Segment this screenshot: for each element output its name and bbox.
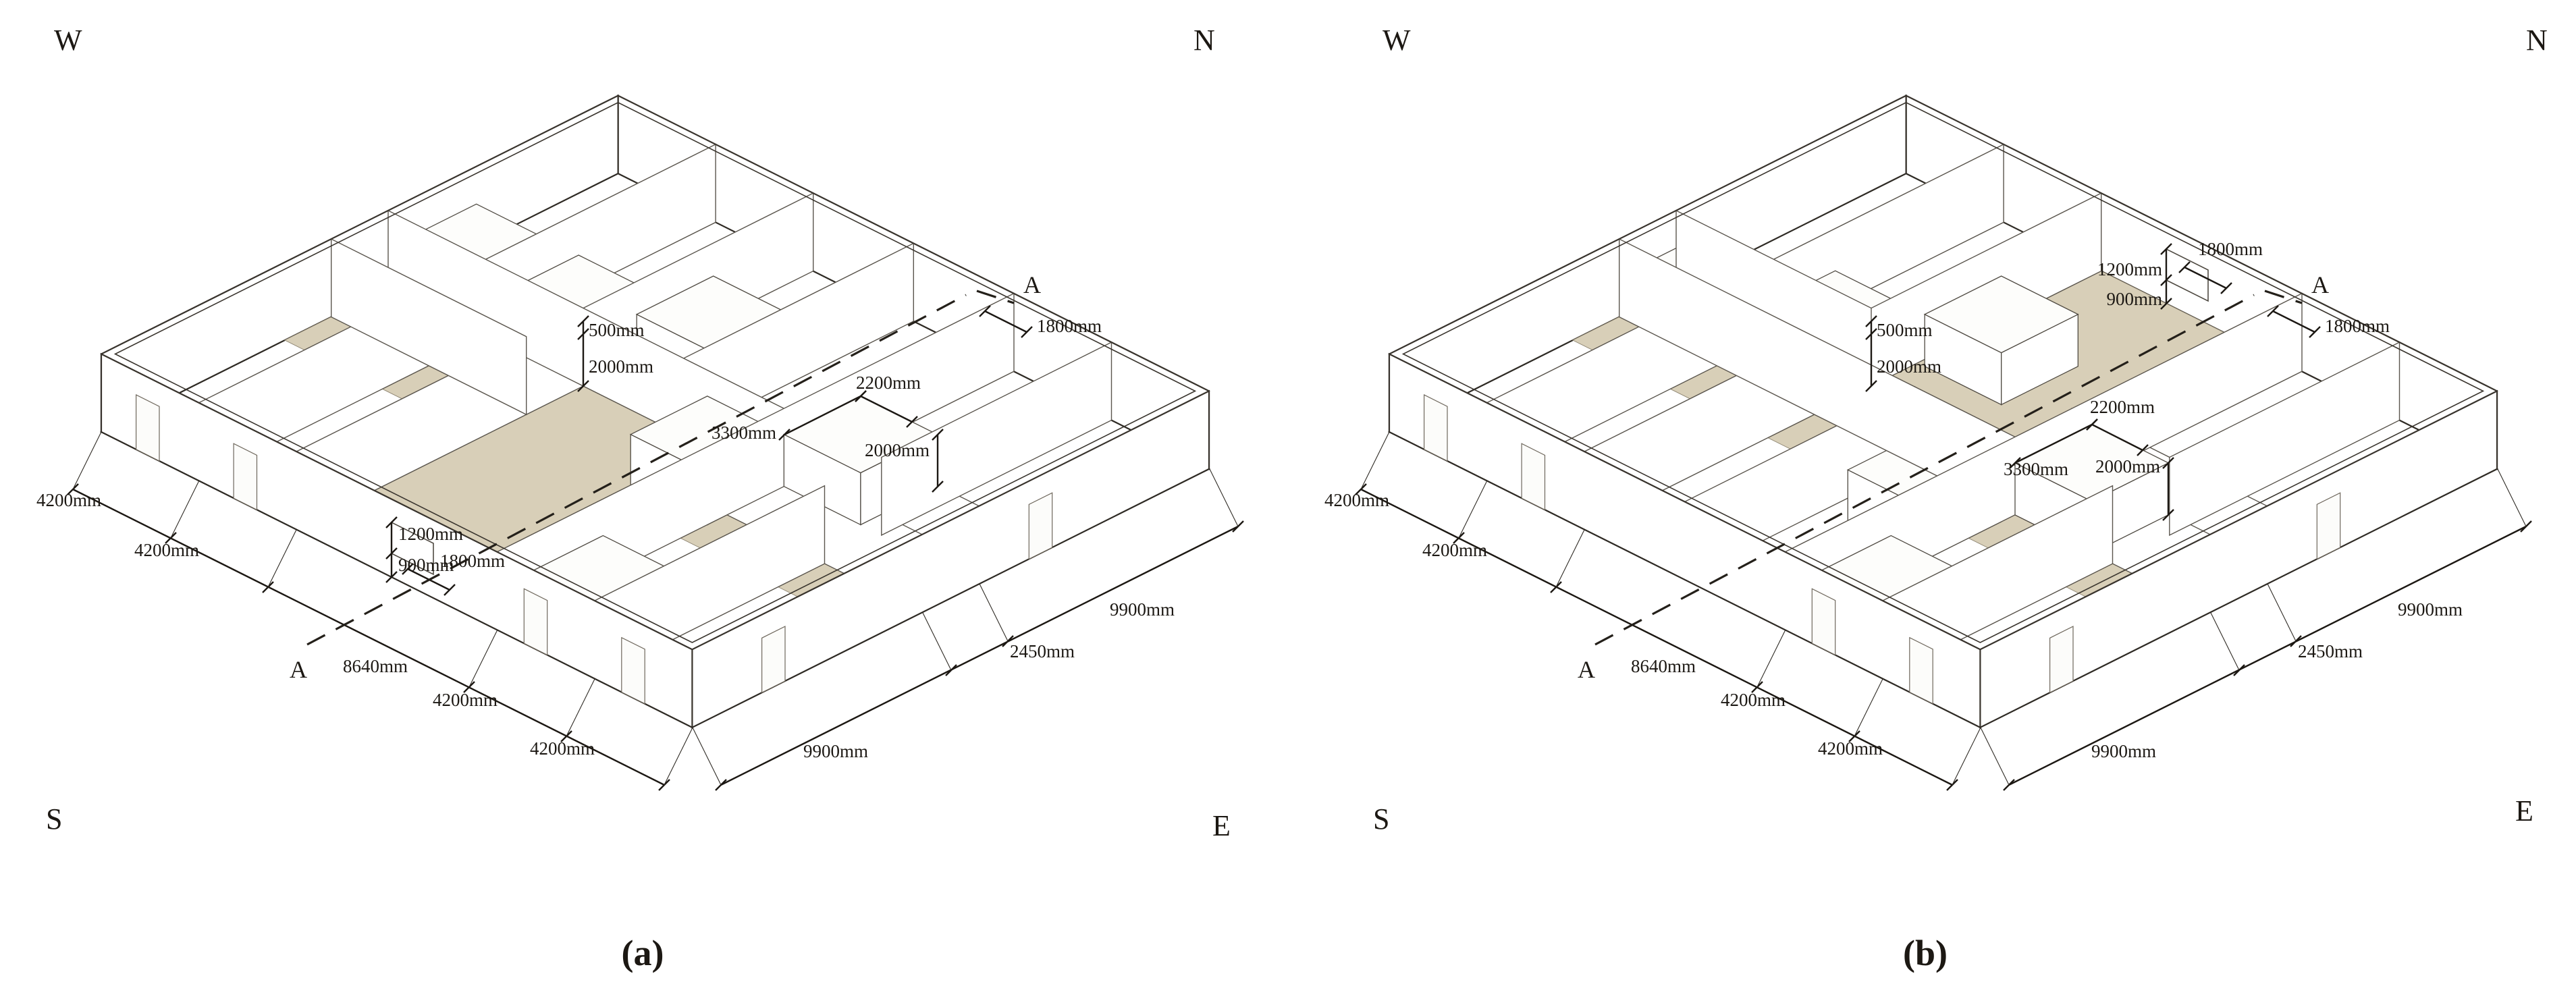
- compass-label: E: [2515, 794, 2533, 827]
- dimension-label: 500mm: [589, 320, 645, 340]
- witness-line: [171, 481, 199, 538]
- compass-label: E: [1212, 809, 1231, 842]
- dimension-label: 9900mm: [803, 741, 868, 761]
- witness-line: [73, 432, 101, 489]
- witness-line: [1952, 728, 1981, 785]
- witness-line: [2211, 613, 2239, 670]
- dimension-label: 1800mm: [2325, 316, 2390, 336]
- door-opening: [1812, 589, 1835, 655]
- dimension-label: 4200mm: [1818, 738, 1883, 759]
- panel-a: 500mm2000mm1800mm2000mm2200mm3300mm1800m…: [0, 0, 1288, 982]
- section-label: A: [290, 656, 307, 683]
- door-opening: [2317, 493, 2340, 559]
- dimension-label: 1200mm: [398, 524, 463, 544]
- door-opening: [1029, 493, 1052, 559]
- panel-a-drawing: 500mm2000mm1800mm2000mm2200mm3300mm1800m…: [0, 0, 1288, 982]
- compass-label: W: [54, 24, 82, 57]
- figure-axonometric-pair: 500mm2000mm1800mm2000mm2200mm3300mm1800m…: [0, 0, 2576, 982]
- witness-line: [664, 728, 693, 785]
- door-opening: [136, 395, 159, 461]
- dimension-label: 2000mm: [2095, 456, 2160, 476]
- compass-label: N: [1193, 24, 1215, 57]
- dimension-label: 2450mm: [2298, 641, 2363, 661]
- section-label: A: [1023, 271, 1041, 298]
- dimension-label: 4200mm: [530, 738, 595, 759]
- dimension-label: 2000mm: [865, 440, 930, 460]
- witness-line: [2498, 469, 2526, 526]
- witness-line: [693, 728, 721, 785]
- witness-line: [469, 630, 498, 687]
- dimension-label: 4200mm: [1422, 540, 1487, 560]
- witness-line: [1981, 728, 2009, 785]
- dimension-label: 4200mm: [134, 540, 199, 560]
- dimension-label: 1200mm: [2097, 259, 2162, 279]
- witness-line: [1757, 630, 1786, 687]
- dimension-label: 4200mm: [1324, 490, 1389, 510]
- compass-label: W: [1383, 24, 1411, 57]
- dimension-label: 8640mm: [1631, 656, 1696, 676]
- witness-line: [1210, 469, 1238, 526]
- dimension-label: 3300mm: [712, 422, 776, 443]
- dimension-label: 4200mm: [433, 690, 498, 710]
- door-opening: [622, 638, 645, 704]
- dimension-label: 9900mm: [2398, 599, 2463, 620]
- witness-line: [1459, 481, 1487, 538]
- dimension-label: 1800mm: [2198, 239, 2263, 259]
- dimension-label: 2200mm: [2090, 397, 2155, 417]
- witness-line: [980, 584, 1008, 641]
- door-opening: [1522, 443, 1545, 510]
- panel-caption: (b): [1903, 933, 1948, 973]
- door-opening: [234, 443, 257, 510]
- witness-line: [1556, 530, 1584, 587]
- witness-line: [268, 530, 296, 587]
- dimension-label: 500mm: [1877, 320, 1933, 340]
- dimension-label: 1800mm: [1037, 316, 1102, 336]
- dimension-label: 9900mm: [1110, 599, 1175, 620]
- compass-label: S: [46, 802, 62, 836]
- panel-b: 500mm2000mm1800mm1200mm900mm1800mm2000mm…: [1288, 0, 2576, 982]
- door-opening: [524, 589, 547, 655]
- dimension-label: 2450mm: [1010, 641, 1075, 661]
- dimension-label: 2000mm: [1877, 356, 1941, 377]
- dimension-label: 4200mm: [36, 490, 101, 510]
- dimension-label: 9900mm: [2091, 741, 2156, 761]
- compass-label: N: [2526, 24, 2548, 57]
- door-opening: [762, 626, 785, 692]
- door-opening: [1424, 395, 1447, 461]
- door-opening: [2050, 626, 2073, 692]
- dimension-label: 4200mm: [1721, 690, 1786, 710]
- section-label: A: [1578, 656, 1595, 683]
- witness-line: [566, 679, 595, 736]
- compass-label: S: [1373, 802, 1389, 836]
- panel-caption: (a): [622, 933, 664, 973]
- witness-line: [923, 613, 951, 670]
- dimension-label: 900mm: [2106, 289, 2162, 309]
- dimension-label: 3300mm: [2004, 459, 2068, 479]
- section-label: A: [2311, 271, 2329, 298]
- witness-line: [1361, 432, 1389, 489]
- dimension-label: 900mm: [398, 555, 454, 575]
- dimension-label: 8640mm: [343, 656, 408, 676]
- witness-line: [1854, 679, 1883, 736]
- dimension-label: 2200mm: [856, 373, 921, 393]
- witness-line: [2268, 584, 2296, 641]
- door-opening: [1910, 638, 1933, 704]
- panel-b-drawing: 500mm2000mm1800mm1200mm900mm1800mm2000mm…: [1288, 0, 2576, 982]
- dimension-label: 2000mm: [589, 356, 653, 377]
